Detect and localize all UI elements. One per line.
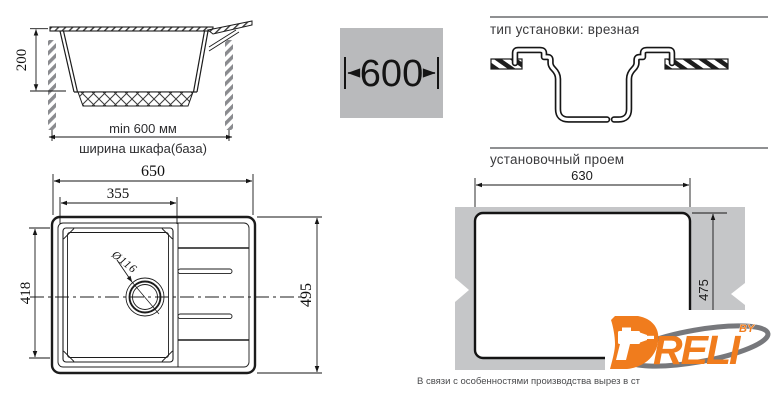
brand-by-label: BY xyxy=(739,323,756,335)
drainboard xyxy=(178,224,249,367)
sink-top-view-diagram: Ø116 650 355 418 495 xyxy=(16,158,328,406)
drain-diameter-label: Ø116 xyxy=(108,248,139,276)
dim-overall-depth-label: 495 xyxy=(298,283,315,307)
dim-bowl-width-label: 355 xyxy=(107,186,130,202)
section-divider-top xyxy=(490,16,768,18)
sink-rim-line xyxy=(58,223,249,367)
sink-spec-sheet: 200 min 600 мм ширина шкафа(база) 600 ти… xyxy=(0,0,771,406)
dim-cutout-width: 630 xyxy=(475,168,690,207)
width-badge-graphic: 600 xyxy=(342,43,441,103)
dim-overall-width-label: 650 xyxy=(141,163,165,180)
countertop-bars xyxy=(491,59,728,69)
sink-outline xyxy=(52,217,255,373)
bowl xyxy=(63,228,173,362)
dim-cabinet-width: min 600 мм ширина шкафа(база) xyxy=(49,121,232,156)
drainboard-rib xyxy=(178,269,232,274)
dim-bowl-width: 355 xyxy=(60,186,177,224)
sink-profile xyxy=(50,21,252,106)
dim-cabinet-height-label: 200 xyxy=(14,49,30,72)
dim-overall-width: 650 xyxy=(53,163,253,215)
sink-rim-profile xyxy=(515,50,672,120)
cutout-heading: установочный проем xyxy=(490,152,624,167)
dim-cutout-width-label: 630 xyxy=(571,168,593,183)
cabinet-width-badge: 600 xyxy=(340,28,443,118)
cabinet-cross-section-diagram: 200 min 600 мм ширина шкафа(база) xyxy=(0,0,280,160)
brand-logo: RELI BY xyxy=(605,310,771,378)
cabinet-width-caption: ширина шкафа(база) xyxy=(79,141,207,156)
dim-cabinet-width-label: min 600 мм xyxy=(109,121,177,136)
brand-letters: RELI xyxy=(653,327,742,373)
section-divider-middle xyxy=(490,147,768,149)
cabinet-width-value: 600 xyxy=(360,53,423,95)
inset-profile-diagram xyxy=(488,44,770,136)
brand-logo-graphic: RELI BY xyxy=(605,310,771,378)
dim-overall-depth: 495 xyxy=(257,217,322,373)
dim-cabinet-height: 200 xyxy=(14,29,66,91)
dim-cutout-height-label: 475 xyxy=(696,279,711,301)
dim-bowl-depth: 418 xyxy=(18,228,50,358)
drain-dimension: Ø116 xyxy=(108,248,159,314)
drainboard-rib xyxy=(178,314,232,319)
dim-bowl-depth-label: 418 xyxy=(18,282,34,305)
installation-type-heading: тип установки: врезная xyxy=(490,22,640,37)
